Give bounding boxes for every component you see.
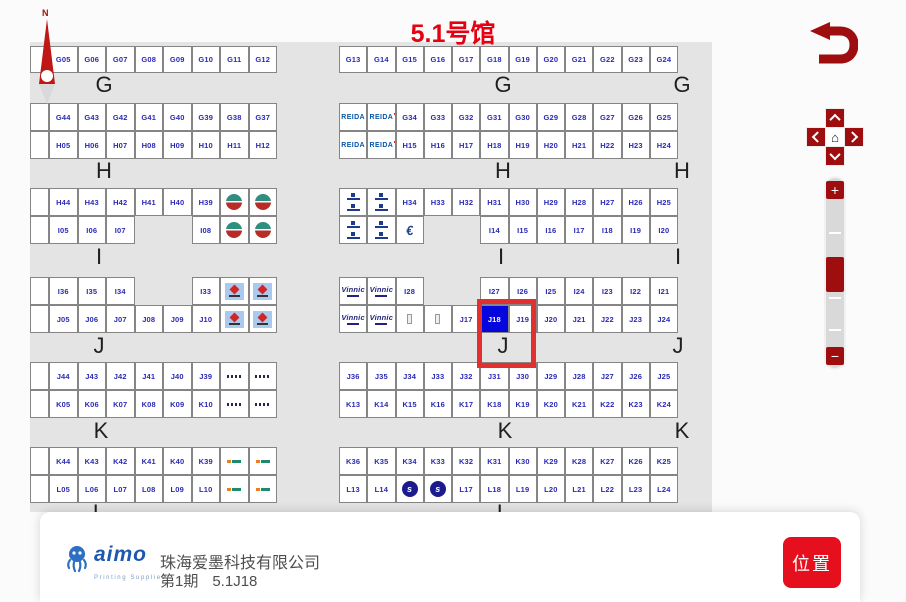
booth-cell[interactable]: L24 xyxy=(650,475,678,503)
section-label: K xyxy=(493,418,517,444)
booth-cell[interactable]: J22 xyxy=(593,305,621,333)
exhibitor-logo-vinnic[interactable]: Vinnic xyxy=(367,277,395,305)
booth-cell[interactable]: L06 xyxy=(78,475,107,503)
empty-booth-cell xyxy=(30,216,49,244)
zoom-in-button[interactable]: + xyxy=(826,181,844,199)
booth-cell[interactable]: K31 xyxy=(480,447,508,475)
booth-cell[interactable]: L23 xyxy=(622,475,650,503)
booth-cell[interactable]: K22 xyxy=(593,390,621,418)
booth-cell[interactable]: H07 xyxy=(106,131,135,159)
booth-cell[interactable]: H40 xyxy=(163,188,192,216)
booth-cell[interactable]: H16 xyxy=(424,131,452,159)
booth-cell[interactable]: H24 xyxy=(650,131,678,159)
booth-cell[interactable]: J27 xyxy=(593,362,621,390)
booth-cell[interactable]: G28 xyxy=(565,103,593,131)
booth-cell[interactable]: K07 xyxy=(106,390,135,418)
booth-cell[interactable]: I17 xyxy=(565,216,593,244)
booth-cell[interactable]: H10 xyxy=(192,131,221,159)
booth-cell[interactable]: I35 xyxy=(78,277,107,305)
location-button[interactable]: 位置 xyxy=(783,537,841,588)
booth-cell[interactable]: G42 xyxy=(106,103,135,131)
brand-tagline: Printing Supplies xyxy=(94,575,166,581)
booth-cell[interactable]: K35 xyxy=(367,447,395,475)
booth-cell[interactable]: K44 xyxy=(49,447,78,475)
booth-cell[interactable]: H09 xyxy=(163,131,192,159)
booth-cell[interactable]: L09 xyxy=(163,475,192,503)
exhibitor-logo-redarrow[interactable] xyxy=(220,277,249,305)
booth-cell[interactable]: K17 xyxy=(452,390,480,418)
undo-arrow-icon xyxy=(806,22,858,68)
booth-cell[interactable]: G32 xyxy=(452,103,480,131)
booth-cell[interactable]: H34 xyxy=(396,188,424,216)
booth-cell[interactable]: H27 xyxy=(593,188,621,216)
section-label: G xyxy=(92,72,116,98)
exhibitor-logo-darkmini[interactable] xyxy=(220,362,249,390)
booth-cell[interactable]: H19 xyxy=(509,131,537,159)
booth-cell[interactable]: G24 xyxy=(650,46,678,73)
booth-cell[interactable]: K42 xyxy=(106,447,135,475)
exhibitor-logo-vinnic[interactable]: Vinnic xyxy=(339,277,367,305)
booth-cell[interactable]: G29 xyxy=(537,103,565,131)
booth-cell[interactable]: K30 xyxy=(509,447,537,475)
booth-cell[interactable]: J44 xyxy=(49,362,78,390)
booth-cell[interactable]: K20 xyxy=(537,390,565,418)
booth-cell[interactable]: G41 xyxy=(135,103,164,131)
booth-cell[interactable]: H21 xyxy=(565,131,593,159)
booth-cell[interactable]: G13 xyxy=(339,46,367,73)
booth-cell[interactable]: G20 xyxy=(537,46,565,73)
booth-cell[interactable]: L13 xyxy=(339,475,367,503)
booth-number: 5.1J18 xyxy=(212,573,257,590)
booth-cell[interactable]: I21 xyxy=(650,277,678,305)
booth-cell[interactable]: G16 xyxy=(424,46,452,73)
booth-cell[interactable]: H31 xyxy=(480,188,508,216)
brand-name: aimo xyxy=(94,543,147,566)
booth-cell[interactable]: H25 xyxy=(650,188,678,216)
booth-cell[interactable]: J24 xyxy=(650,305,678,333)
booth-cell[interactable]: J40 xyxy=(163,362,192,390)
exhibitor-logo-euro[interactable]: € xyxy=(396,216,424,244)
exhibitor-logo-reida[interactable]: REIDA xyxy=(339,103,367,131)
booth-cell[interactable]: J20 xyxy=(537,305,565,333)
booth-cell[interactable]: G25 xyxy=(650,103,678,131)
booth-cell[interactable]: L18 xyxy=(480,475,508,503)
booth-cell[interactable]: K43 xyxy=(78,447,107,475)
exhibitor-logo-darkmini[interactable] xyxy=(220,390,249,418)
exhibitor-logo-pole[interactable] xyxy=(424,305,452,333)
booth-cell[interactable]: H18 xyxy=(480,131,508,159)
empty-booth-cell xyxy=(30,390,49,418)
booth-cell[interactable]: H43 xyxy=(78,188,107,216)
exhibitor-logo-reida[interactable]: REIDA xyxy=(339,131,367,159)
booth-cell[interactable]: K27 xyxy=(593,447,621,475)
booth-cell[interactable]: J42 xyxy=(106,362,135,390)
booth-cell[interactable]: J06 xyxy=(78,305,107,333)
booth-cell[interactable]: H08 xyxy=(135,131,164,159)
booth-cell[interactable]: G22 xyxy=(593,46,621,73)
booth-cell[interactable]: I06 xyxy=(78,216,107,244)
booth-cell[interactable]: J28 xyxy=(565,362,593,390)
exhibitor-logo-reida[interactable]: REIDA xyxy=(367,131,395,159)
exhibitor-logo-globe[interactable] xyxy=(220,188,249,216)
booth-cell[interactable]: J21 xyxy=(565,305,593,333)
booth-cell[interactable]: H41 xyxy=(135,188,164,216)
zoom-tick xyxy=(829,329,841,331)
booth-cell[interactable]: K41 xyxy=(135,447,164,475)
booth-cell[interactable]: L19 xyxy=(509,475,537,503)
booth-cell[interactable]: I07 xyxy=(106,216,135,244)
booth-cell[interactable]: K16 xyxy=(424,390,452,418)
booth-cell[interactable]: G12 xyxy=(249,46,278,73)
booth-cell[interactable]: G37 xyxy=(249,103,278,131)
section-label: K xyxy=(89,418,113,444)
booth-cell[interactable]: H33 xyxy=(424,188,452,216)
booth-cell[interactable]: J39 xyxy=(192,362,221,390)
exhibitor-logo-redarrow[interactable] xyxy=(249,277,278,305)
booth-cell[interactable]: H22 xyxy=(593,131,621,159)
booth-cell[interactable]: I28 xyxy=(396,277,424,305)
empty-booth-cell xyxy=(30,362,49,390)
booth-cell[interactable]: G08 xyxy=(135,46,164,73)
booth-cell[interactable]: J25 xyxy=(650,362,678,390)
booth-info: 第1期5.1J18 xyxy=(160,570,257,591)
booth-cell[interactable]: K40 xyxy=(163,447,192,475)
booth-cell[interactable]: L05 xyxy=(49,475,78,503)
exhibitor-logo-bluecircle[interactable]: s xyxy=(396,475,424,503)
empty-booth-cell xyxy=(30,188,49,216)
exhibitor-logo-redarrow[interactable] xyxy=(249,305,278,333)
exhibitor-logo-globe[interactable] xyxy=(249,216,278,244)
booth-cell[interactable]: L21 xyxy=(565,475,593,503)
booth-cell[interactable]: I19 xyxy=(622,216,650,244)
exhibitor-logo-colormini[interactable] xyxy=(249,447,278,475)
booth-cell[interactable]: J43 xyxy=(78,362,107,390)
north-compass: N xyxy=(34,6,60,111)
exhibitor-logo-bluecircle[interactable]: s xyxy=(424,475,452,503)
booth-cell[interactable]: K25 xyxy=(650,447,678,475)
exhibitor-logo-pole[interactable] xyxy=(396,305,424,333)
exhibitor-logo-vinnic[interactable]: Vinnic xyxy=(339,305,367,333)
booth-cell[interactable]: J07 xyxy=(106,305,135,333)
booth-cell[interactable]: K15 xyxy=(396,390,424,418)
booth-cell[interactable]: G10 xyxy=(192,46,221,73)
booth-cell[interactable]: J33 xyxy=(424,362,452,390)
section-label: H xyxy=(670,158,694,184)
section-label: J xyxy=(87,333,111,359)
booth-cell[interactable]: H30 xyxy=(509,188,537,216)
pan-down-button[interactable] xyxy=(826,147,844,165)
pan-right-button[interactable] xyxy=(845,128,863,146)
home-icon: ⌂ xyxy=(831,131,839,144)
booth-cell[interactable]: L07 xyxy=(106,475,135,503)
booth-cell[interactable]: K24 xyxy=(650,390,678,418)
booth-cell[interactable]: G09 xyxy=(163,46,192,73)
zoom-tick xyxy=(829,297,841,299)
booth-cell[interactable]: J05 xyxy=(49,305,78,333)
booth-cell[interactable]: H23 xyxy=(622,131,650,159)
booth-cell[interactable]: J09 xyxy=(163,305,192,333)
empty-booth-cell xyxy=(30,131,49,159)
booth-cell[interactable]: I16 xyxy=(537,216,565,244)
section-label: G xyxy=(491,72,515,98)
booth-cell[interactable]: G18 xyxy=(480,46,508,73)
booth-cell[interactable]: L22 xyxy=(593,475,621,503)
booth-cell[interactable]: H44 xyxy=(49,188,78,216)
booth-cell[interactable]: H05 xyxy=(49,131,78,159)
section-label: H xyxy=(491,158,515,184)
exhibitor-logo-darkmini[interactable] xyxy=(249,362,278,390)
exhibitor-logo-colormini[interactable] xyxy=(220,475,249,503)
exhibitor-logo-reida[interactable]: REIDA xyxy=(367,103,395,131)
booth-cell[interactable]: J41 xyxy=(135,362,164,390)
booth-cell[interactable]: G15 xyxy=(396,46,424,73)
section-label: H xyxy=(92,158,116,184)
booth-cell[interactable]: K39 xyxy=(192,447,221,475)
booth-cell[interactable]: K06 xyxy=(78,390,107,418)
booth-cell[interactable]: H11 xyxy=(220,131,249,159)
booth-cell[interactable]: I22 xyxy=(622,277,650,305)
booth-cell[interactable]: I08 xyxy=(192,216,221,244)
booth-cell[interactable]: J10 xyxy=(192,305,221,333)
page-title: 5.1号馆 xyxy=(0,14,906,50)
back-button[interactable] xyxy=(806,22,858,70)
booth-cell[interactable]: H12 xyxy=(249,131,278,159)
booth-cell[interactable]: G23 xyxy=(622,46,650,73)
zoom-out-button[interactable]: − xyxy=(826,347,844,365)
booth-cell[interactable]: I25 xyxy=(537,277,565,305)
empty-booth-cell xyxy=(30,305,49,333)
octopus-icon xyxy=(64,544,90,574)
booth-cell[interactable]: K08 xyxy=(135,390,164,418)
exhibitor-logo-tag2[interactable] xyxy=(339,188,367,216)
booth-cell[interactable]: J36 xyxy=(339,362,367,390)
booth-cell[interactable]: L17 xyxy=(452,475,480,503)
booth-cell[interactable]: K23 xyxy=(622,390,650,418)
booth-cell[interactable]: H06 xyxy=(78,131,107,159)
booth-cell[interactable]: H15 xyxy=(396,131,424,159)
chevron-left-icon xyxy=(812,131,823,142)
booth-cell[interactable]: G21 xyxy=(565,46,593,73)
exhibitor-logo-tag2[interactable] xyxy=(367,188,395,216)
booth-cell[interactable]: I34 xyxy=(106,277,135,305)
booth-cell[interactable]: G38 xyxy=(220,103,249,131)
selected-booth-highlight xyxy=(477,299,536,368)
booth-cell[interactable]: H20 xyxy=(537,131,565,159)
zoom-tick xyxy=(829,232,841,234)
compass-n-label: N xyxy=(42,8,49,18)
hall-map-panel: G05G06G07G08G09G10G11G12G13G14G15G16G17G… xyxy=(30,42,712,512)
home-button[interactable]: ⌂ xyxy=(826,128,844,146)
booth-cell[interactable]: I23 xyxy=(593,277,621,305)
booth-cell[interactable]: H32 xyxy=(452,188,480,216)
booth-cell[interactable]: K32 xyxy=(452,447,480,475)
booth-cell[interactable]: G31 xyxy=(480,103,508,131)
booth-cell[interactable]: G30 xyxy=(509,103,537,131)
booth-cell[interactable]: I33 xyxy=(192,277,221,305)
booth-cell[interactable]: K36 xyxy=(339,447,367,475)
section-label: I xyxy=(666,244,690,270)
booth-cell[interactable]: G17 xyxy=(452,46,480,73)
booth-cell[interactable]: J32 xyxy=(452,362,480,390)
zoom-slider-handle[interactable] xyxy=(826,257,844,292)
booth-cell[interactable]: K10 xyxy=(192,390,221,418)
booth-cell[interactable]: K14 xyxy=(367,390,395,418)
booth-cell[interactable]: K21 xyxy=(565,390,593,418)
booth-cell[interactable]: J08 xyxy=(135,305,164,333)
chevron-down-icon xyxy=(829,149,840,160)
section-label: I xyxy=(87,244,111,270)
exhibitor-logo-tag2[interactable] xyxy=(367,216,395,244)
exhibitor-logo-redarrow[interactable] xyxy=(220,305,249,333)
booth-cell[interactable]: J29 xyxy=(537,362,565,390)
exhibitor-brand-logo: aimo Printing Supplies xyxy=(64,544,166,584)
section-label: K xyxy=(670,418,694,444)
booth-cell[interactable]: H29 xyxy=(537,188,565,216)
booth-cell[interactable]: G26 xyxy=(622,103,650,131)
exhibitor-logo-colormini[interactable] xyxy=(249,475,278,503)
exhibitor-logo-tag2[interactable] xyxy=(339,216,367,244)
pan-left-button[interactable] xyxy=(807,128,825,146)
booth-cell[interactable]: H26 xyxy=(622,188,650,216)
booth-cell[interactable]: G19 xyxy=(509,46,537,73)
booth-cell[interactable]: J35 xyxy=(367,362,395,390)
booth-cell[interactable]: H42 xyxy=(106,188,135,216)
booth-cell[interactable]: K05 xyxy=(49,390,78,418)
exhibitor-logo-vinnic[interactable]: Vinnic xyxy=(367,305,395,333)
booth-cell[interactable]: J34 xyxy=(396,362,424,390)
booth-cell[interactable]: K09 xyxy=(163,390,192,418)
booth-cell[interactable]: J26 xyxy=(622,362,650,390)
booth-cell[interactable]: G14 xyxy=(367,46,395,73)
booth-cell[interactable]: H28 xyxy=(565,188,593,216)
booth-cell[interactable]: I15 xyxy=(509,216,537,244)
booth-cell[interactable]: I36 xyxy=(49,277,78,305)
exhibitor-logo-globe[interactable] xyxy=(249,188,278,216)
booth-cell[interactable]: K13 xyxy=(339,390,367,418)
booth-cell[interactable]: K18 xyxy=(480,390,508,418)
chevron-right-icon xyxy=(847,131,858,142)
booth-cell[interactable]: G39 xyxy=(192,103,221,131)
booth-cell[interactable]: J17 xyxy=(452,305,480,333)
booth-cell[interactable]: I14 xyxy=(480,216,508,244)
empty-booth-cell xyxy=(30,475,49,503)
booth-cell[interactable]: G43 xyxy=(78,103,107,131)
exhibitor-logo-darkmini[interactable] xyxy=(249,390,278,418)
booth-cell[interactable]: G33 xyxy=(424,103,452,131)
booth-cell[interactable]: G07 xyxy=(106,46,135,73)
booth-cell[interactable]: L10 xyxy=(192,475,221,503)
booth-cell[interactable]: K29 xyxy=(537,447,565,475)
booth-cell[interactable]: J23 xyxy=(622,305,650,333)
booth-cell[interactable]: I05 xyxy=(49,216,78,244)
empty-booth-cell xyxy=(30,447,49,475)
section-label: J xyxy=(666,333,690,359)
booth-cell[interactable]: I24 xyxy=(565,277,593,305)
booth-cell[interactable]: K33 xyxy=(424,447,452,475)
exhibitor-logo-colormini[interactable] xyxy=(220,447,249,475)
booth-cell[interactable]: H17 xyxy=(452,131,480,159)
booth-cell[interactable]: H39 xyxy=(192,188,221,216)
empty-booth-cell xyxy=(30,277,49,305)
booth-cell[interactable]: L08 xyxy=(135,475,164,503)
booth-cell[interactable]: G27 xyxy=(593,103,621,131)
section-label: G xyxy=(670,72,694,98)
booth-cell[interactable]: K28 xyxy=(565,447,593,475)
booth-cell[interactable]: G06 xyxy=(78,46,107,73)
booth-cell[interactable]: K34 xyxy=(396,447,424,475)
section-label: I xyxy=(489,244,513,270)
booth-cell[interactable]: G40 xyxy=(163,103,192,131)
booth-cell[interactable]: G34 xyxy=(396,103,424,131)
booth-cell[interactable]: K19 xyxy=(509,390,537,418)
chevron-up-icon xyxy=(829,114,840,125)
booth-cell[interactable]: L14 xyxy=(367,475,395,503)
phase-label: 第1期 xyxy=(160,573,198,590)
exhibitor-logo-globe[interactable] xyxy=(220,216,249,244)
booth-cell[interactable]: G11 xyxy=(220,46,249,73)
booth-cell[interactable]: I20 xyxy=(650,216,678,244)
booth-cell[interactable]: K26 xyxy=(622,447,650,475)
booth-cell[interactable]: L20 xyxy=(537,475,565,503)
pan-up-button[interactable] xyxy=(826,109,844,127)
booth-cell[interactable]: I18 xyxy=(593,216,621,244)
